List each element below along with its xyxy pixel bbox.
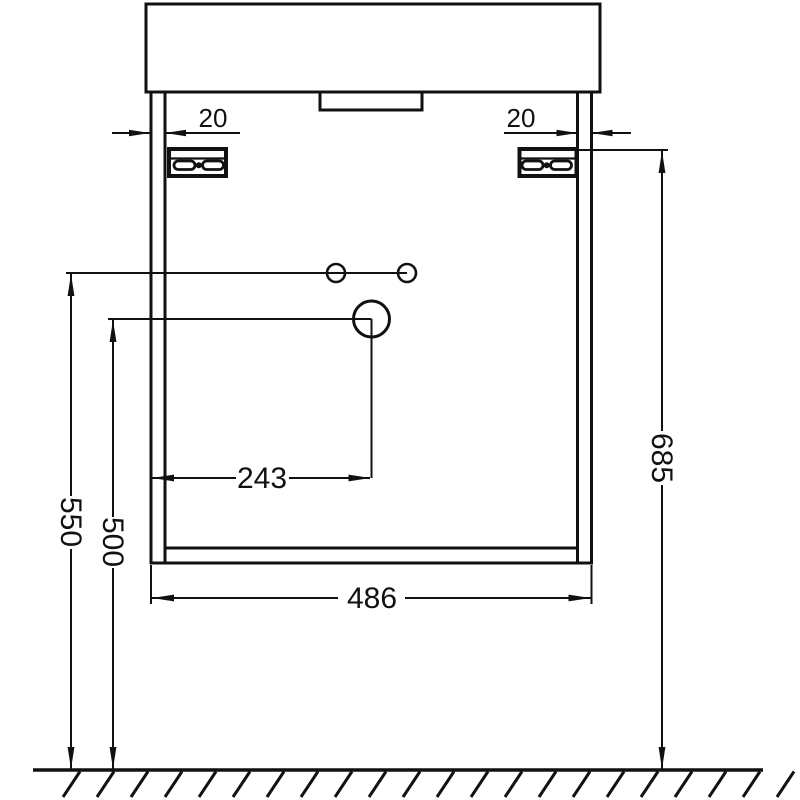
floor: [33, 770, 794, 797]
dimension-label-486: 486: [347, 582, 397, 615]
arrowhead-icon: [68, 274, 75, 296]
arrowhead-icon: [110, 320, 117, 342]
arrowhead-icon: [659, 747, 666, 769]
dimension-20-right: 20: [504, 103, 631, 136]
dimension-label-550: 550: [54, 497, 87, 547]
dimension-label-20-left: 20: [199, 103, 228, 133]
arrowhead-icon: [68, 747, 75, 769]
arrowhead-icon: [557, 130, 578, 137]
mounting-bracket-right: [520, 149, 577, 176]
dimension-500: 500: [96, 319, 129, 770]
hole-markers: [66, 264, 416, 478]
washbasin-outline: [146, 4, 600, 110]
cabinet-bottom-panel: [150, 548, 594, 563]
cabinet-left-panel: [151, 92, 165, 563]
arrowhead-icon: [165, 130, 186, 137]
dimension-243: 243: [152, 462, 371, 495]
vanity-installation-drawing: 20 20 550 500 685 243: [0, 0, 800, 800]
arrowhead-icon: [592, 130, 613, 137]
dimension-label-500: 500: [96, 517, 129, 567]
mounting-bracket-left: [169, 149, 226, 176]
arrowhead-icon: [152, 595, 174, 602]
technical-drawing-canvas: 20 20 550 500 685 243: [0, 0, 800, 800]
arrowhead-icon: [110, 747, 117, 769]
dimension-486: 486: [151, 565, 592, 615]
dimension-label-243: 243: [237, 462, 287, 495]
arrowhead-icon: [569, 595, 591, 602]
cabinet-right-panel: [578, 92, 592, 563]
dimension-20-left: 20: [112, 103, 240, 136]
arrowhead-icon: [152, 475, 174, 482]
arrowhead-icon: [349, 475, 371, 482]
arrowhead-icon: [129, 130, 150, 137]
floor-hatching: [63, 772, 794, 798]
dimension-550: 550: [54, 273, 87, 770]
dimension-label-685: 685: [645, 433, 678, 483]
arrowhead-icon: [659, 151, 666, 173]
basin-notch: [320, 92, 422, 110]
dimension-label-20-right: 20: [507, 103, 536, 133]
